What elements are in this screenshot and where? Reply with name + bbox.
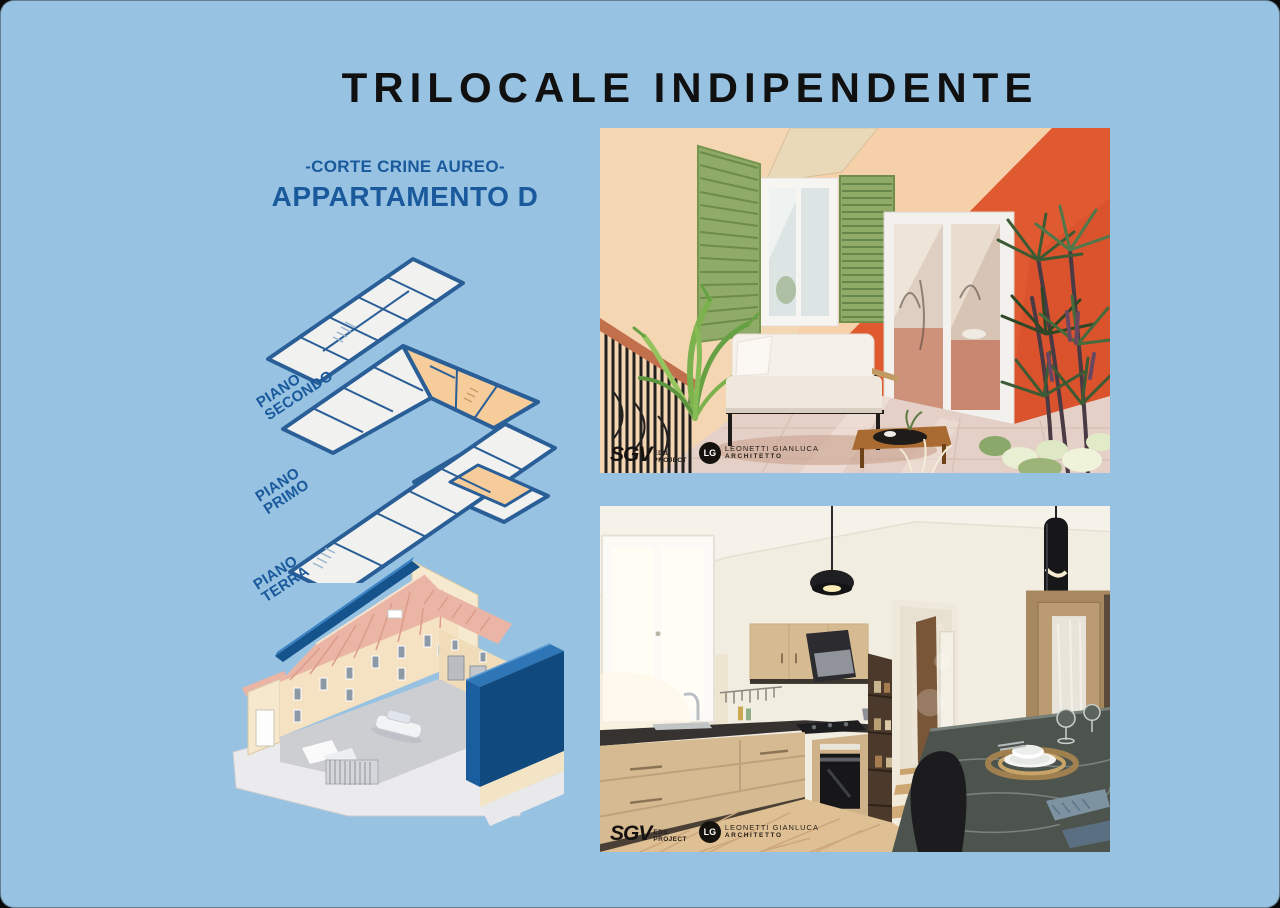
architect-monogram-icon: LG <box>699 442 721 464</box>
architect-monogram-icon: LG <box>699 821 721 843</box>
page-title: TRILOCALE INDIPENDENTE <box>210 64 1170 112</box>
branding-strip: SGV EDILPROJECT LG LEONETTI GIANLUCAARCH… <box>610 821 819 843</box>
architect-logo: LG LEONETTI GIANLUCAARCHITETTO <box>699 442 819 464</box>
court-name: -CORTE CRINE AUREO- <box>255 157 555 177</box>
shutter-left <box>698 146 760 342</box>
kitchen-photo: SGV EDILPROJECT LG LEONETTI GIANLUCAARCH… <box>600 506 1110 852</box>
architect-logo: LG LEONETTI GIANLUCAARCHITETTO <box>699 821 819 843</box>
branding-strip: SGV EDILPROJECT LG LEONETTI GIANLUCAARCH… <box>610 442 819 464</box>
flyer-page: TRILOCALE INDIPENDENTE -CORTE CRINE AURE… <box>0 0 1280 908</box>
kitchen-render <box>600 506 1110 852</box>
french-door <box>884 212 1014 424</box>
dining-chair <box>911 751 967 852</box>
terrace-photo: SGV EDILPROJECT LG LEONETTI GIANLUCAARCH… <box>600 128 1110 473</box>
building-axonometry <box>228 552 580 852</box>
sgv-logo: SGV EDILPROJECT <box>610 446 687 464</box>
upper-cabinets <box>750 624 868 684</box>
window <box>760 178 838 326</box>
apartment-name: APPARTAMENTO D <box>255 181 555 213</box>
terrace-render <box>600 128 1110 473</box>
sgv-logo: SGV EDILPROJECT <box>610 825 687 843</box>
